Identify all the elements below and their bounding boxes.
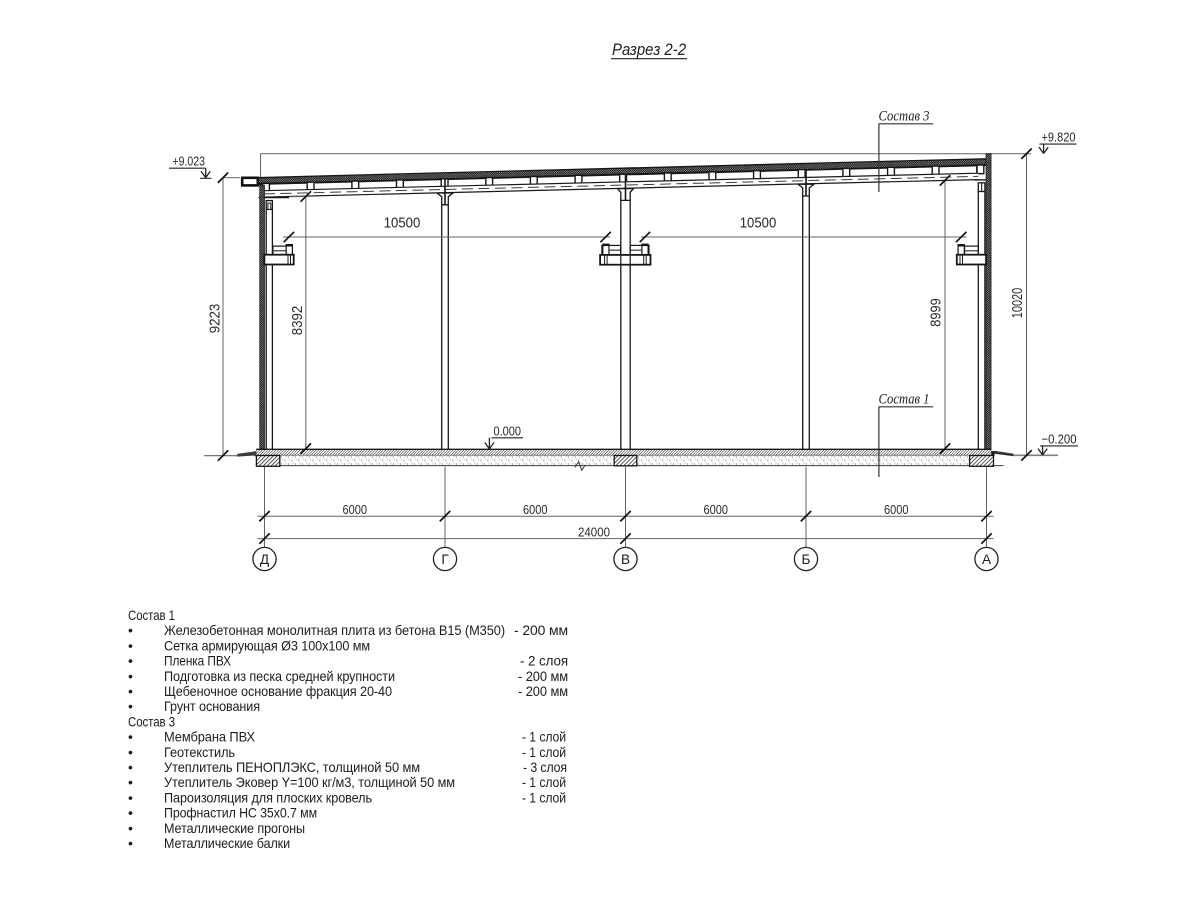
svg-text:Б: Б [802,552,811,567]
svg-text:- 200 мм: - 200 мм [518,668,568,684]
svg-text:Разрез 2-2: Разрез 2-2 [612,41,686,59]
svg-text:•: • [128,759,133,775]
svg-text:Утеплитель Эковер Y=100 кг/м3,: Утеплитель Эковер Y=100 кг/м3, толщиной … [164,774,455,790]
svg-text:0.000: 0.000 [494,424,522,439]
svg-text:- 2 слоя: - 2 слоя [520,653,568,669]
svg-text:Щебеночное основание фракция 2: Щебеночное основание фракция 20-40 [164,683,392,699]
svg-text:Железобетонная монолитная плит: Железобетонная монолитная плита из бетон… [164,622,505,638]
svg-text:Пленка ПВХ: Пленка ПВХ [164,653,232,669]
svg-text:−0.200: −0.200 [1042,432,1077,447]
svg-text:+9.820: +9.820 [1042,129,1076,144]
svg-text:Геотекстиль: Геотекстиль [164,744,235,760]
svg-text:•: • [128,698,133,714]
svg-text:- 1 слой: - 1 слой [522,744,566,760]
svg-text:Состав 3: Состав 3 [879,109,930,125]
svg-text:•: • [128,668,133,684]
svg-text:•: • [128,683,133,699]
svg-text:•: • [128,805,133,821]
svg-text:Утеплитель ПЕНОПЛЭКС, толщиной: Утеплитель ПЕНОПЛЭКС, толщиной 50 мм [164,759,420,775]
svg-text:- 1 слой: - 1 слой [522,774,566,790]
svg-text:Состав 3: Состав 3 [128,713,175,729]
svg-text:•: • [128,729,133,745]
svg-text:•: • [128,744,133,760]
svg-text:Профнастил НС 35х0.7 мм: Профнастил НС 35х0.7 мм [164,805,317,821]
svg-text:10500: 10500 [740,214,777,231]
svg-text:+9.023: +9.023 [173,153,206,168]
svg-text:Состав 1: Состав 1 [128,607,175,623]
svg-text:6000: 6000 [343,502,368,517]
svg-text:Металлические прогоны: Металлические прогоны [164,820,305,836]
svg-text:Мембрана ПВХ: Мембрана ПВХ [164,729,256,745]
svg-text:- 1 слой: - 1 слой [522,789,566,805]
svg-text:•: • [128,789,133,805]
svg-text:А: А [982,552,992,567]
svg-text:Д: Д [260,552,269,567]
svg-text:24000: 24000 [578,525,610,540]
svg-text:6000: 6000 [523,502,548,517]
svg-text:8999: 8999 [928,298,945,327]
svg-text:10020: 10020 [1009,288,1026,319]
svg-text:Грунт основания: Грунт основания [164,698,260,714]
svg-text:Состав 1: Состав 1 [879,392,930,408]
svg-text:10500: 10500 [384,214,421,231]
svg-text:6000: 6000 [884,502,909,517]
svg-text:- 200 мм: - 200 мм [518,683,568,699]
svg-text:•: • [128,835,133,851]
svg-text:Металлические балки: Металлические балки [164,835,290,851]
svg-text:•: • [128,622,133,638]
svg-text:Сетка армирующая Ø3 100х100 мм: Сетка армирующая Ø3 100х100 мм [164,637,370,653]
svg-text:•: • [128,653,133,669]
svg-text:В: В [621,552,630,567]
svg-text:•: • [128,820,133,836]
svg-text:Пароизоляция для плоских крове: Пароизоляция для плоских кровель [164,789,372,805]
svg-text:- 3 слоя: - 3 слоя [523,759,567,775]
svg-text:•: • [128,774,133,790]
svg-text:- 200 мм: - 200 мм [514,622,568,638]
svg-text:Подготовка из песка средней кр: Подготовка из песка средней крупности [164,668,395,684]
svg-text:- 1 слой: - 1 слой [522,729,566,745]
svg-text:9223: 9223 [207,304,224,334]
svg-text:8392: 8392 [289,306,306,336]
svg-text:•: • [128,637,133,653]
svg-text:6000: 6000 [704,502,729,517]
svg-text:Г: Г [441,552,449,567]
